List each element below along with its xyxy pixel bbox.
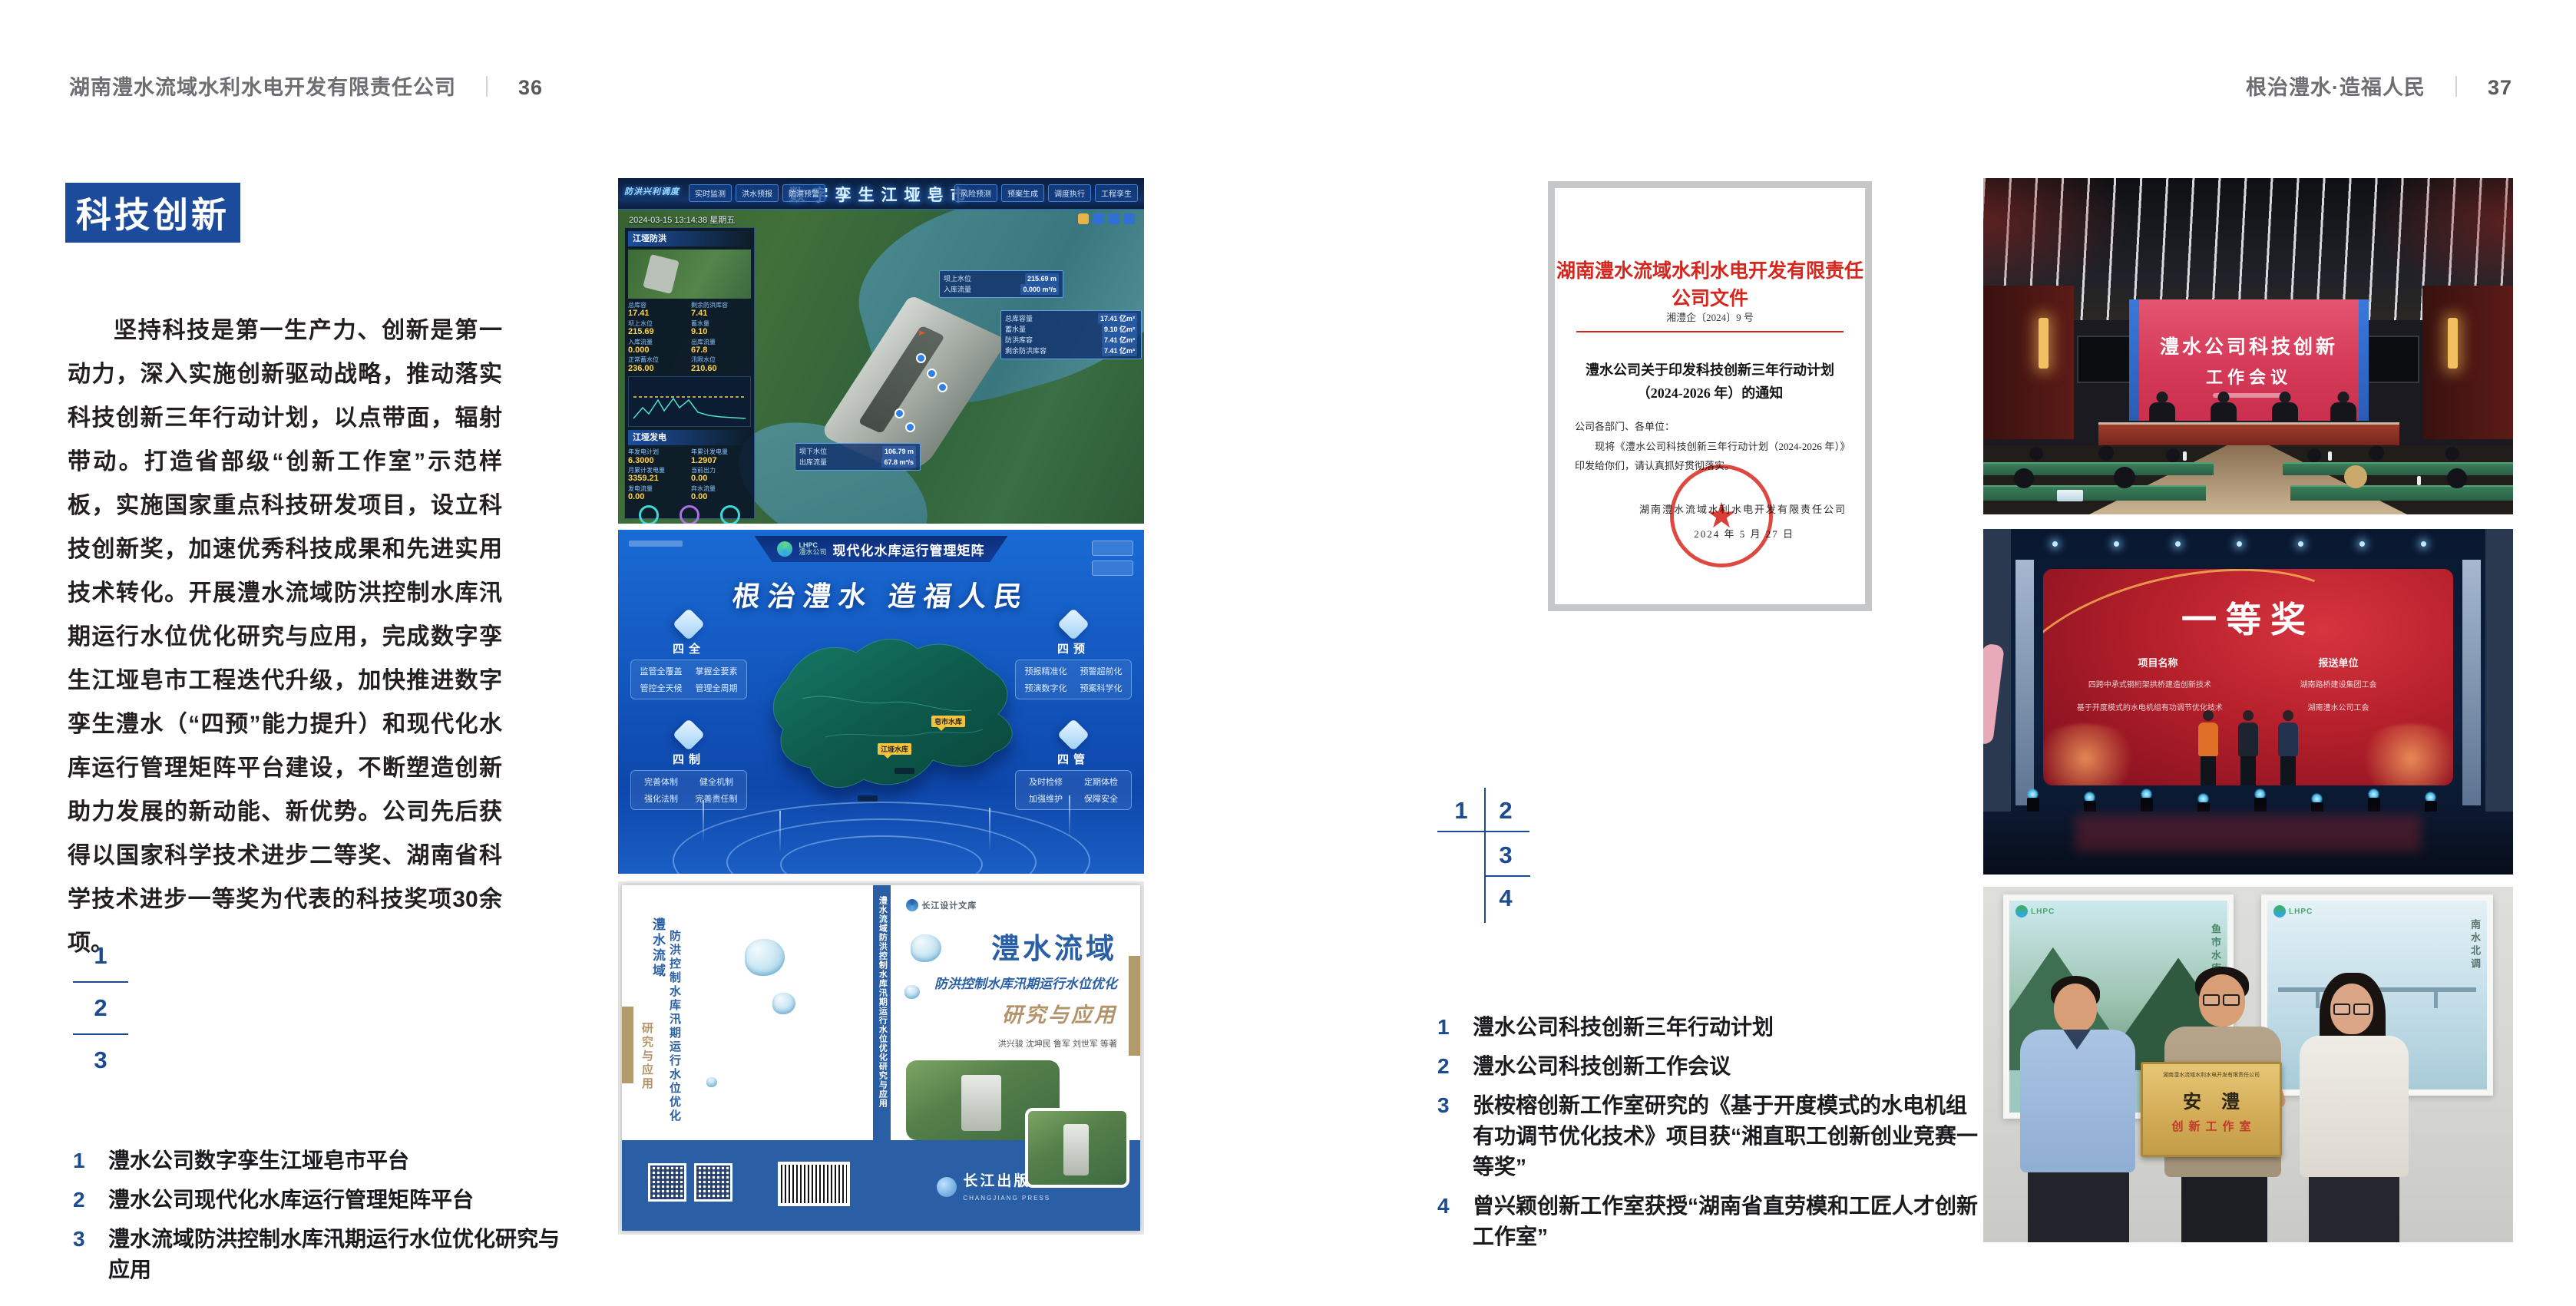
caption-text: 澧水流域防洪控制水库汛期运行水位优化研究与应用 [108, 1227, 560, 1281]
toolbar-icons [1078, 213, 1135, 224]
dam-thumbnail [628, 250, 751, 299]
official-document: 湖南澧水流域水利水电开发有限责任公司文件 湘澧企〔2024〕9 号 澧水公司关于… [1548, 181, 1872, 611]
lhpc-logo: LHPC [2273, 905, 2313, 918]
page-left-header: 湖南澧水流域水利水电开发有限责任公司 ｜ 36 [69, 71, 543, 101]
audience-head [2029, 447, 2043, 461]
desk-row [1983, 485, 2206, 501]
panel-item: 完善责任制 [689, 792, 743, 805]
stat-value: 17.41 [628, 309, 688, 319]
stage-light-dot [2298, 541, 2303, 547]
glow [2353, 724, 2453, 785]
panel-title: 四制 [630, 751, 747, 767]
powerhouse-photo [1025, 1108, 1129, 1188]
person-pants [2309, 1177, 2399, 1242]
gauge-icon [680, 505, 699, 524]
screen-edge [2359, 299, 2369, 421]
map-dot [927, 369, 937, 379]
stat-label: 坝上水位 [944, 273, 971, 284]
glasses-icon [2333, 1003, 2370, 1015]
alert-icon [1078, 213, 1089, 224]
stat-label: 蓄水量 [691, 320, 751, 327]
button-chip [1092, 541, 1133, 556]
document-org-title: 湖南澧水流域水利水电开发有限责任公司文件 [1555, 256, 1865, 311]
panel-item: 强化法制 [634, 792, 688, 805]
back-bottom-band [622, 1140, 873, 1231]
moving-head-light [2367, 789, 2380, 815]
water-drop [904, 985, 920, 999]
led-screen: 一等奖 项目名称 报送单位 四跨中承式钢桁架拱桥建造创新技术 基于开度模式的水电… [2043, 569, 2453, 785]
nav-tabs-right: 风险预测 预案生成 调度执行 工程孪生 [954, 184, 1138, 202]
stat-value: 3359.21 [628, 474, 688, 484]
back-subtitle: 防洪控制水库汛期运行水位优化 [666, 930, 683, 1123]
panel-item: 保障安全 [1074, 792, 1128, 805]
back-tail: 研究与应用 [639, 1022, 655, 1091]
speaker-silhouette [2211, 402, 2237, 422]
stat-value: 236.00 [628, 364, 688, 374]
tan-tab [622, 1007, 633, 1083]
header-divider: ｜ [2445, 76, 2467, 99]
tab: 预案生成 [1001, 184, 1044, 202]
stat-label: 入库流量 [628, 339, 688, 346]
awardee-silhouette [2277, 710, 2300, 785]
caption-number: 3 [73, 1224, 85, 1255]
divider-line [1437, 831, 1529, 832]
audience-area [1983, 445, 2513, 514]
stage-light-dot [2359, 541, 2365, 547]
org-name: 湖南路桥建设集团工会 [2257, 678, 2421, 689]
panel-item: 监管全覆盖 [634, 665, 688, 677]
back-title: 澧水流域 [648, 918, 667, 979]
document-subject: 澧水公司关于印发科技创新三年行动计划 （2024-2026 年）的通知 [1555, 359, 1865, 405]
subject-line1: 澧水公司关于印发科技创新三年行动计划 [1586, 362, 1834, 378]
stat-label: 正常蓄水位 [628, 356, 688, 363]
awardee-silhouette [2197, 710, 2220, 785]
plaque-subtitle: 创新工作室 [2143, 1118, 2280, 1134]
stage-pillar [2015, 560, 2034, 805]
panel-title: 四全 [630, 640, 747, 656]
figure-digital-twin-dashboard: 防洪兴利调度 数字孪生江垭皂市 实时监测 洪水预报 防洪预警 风险预测 预案生成… [618, 178, 1144, 524]
lhpc-logo: LHPC [2015, 905, 2055, 918]
panel-item: 定期体检 [1074, 775, 1128, 788]
map-marker: 皂市水库 [931, 716, 965, 727]
caption-number: 1 [73, 1146, 85, 1176]
matrix-header: LHPC澧水公司 现代化水库运行管理矩阵 [755, 536, 1008, 562]
wall-lamp [2039, 318, 2049, 369]
panel-item: 预警超前化 [1074, 665, 1128, 677]
section-title-box: 科技创新 [65, 183, 240, 243]
moving-head-light [2026, 789, 2039, 815]
tissue-box [2057, 490, 2083, 501]
stat-value: 7.41 亿m³ [1102, 335, 1137, 346]
gauge-icon [639, 505, 659, 524]
stat-value: 0.00 [691, 474, 751, 484]
stat-label: 蓄水量 [1005, 324, 1026, 335]
left-wall [1983, 286, 2074, 439]
stat-value: 0.00 [628, 492, 688, 502]
book-subtitle: 防洪控制水库汛期运行水位优化 [934, 973, 1117, 992]
system-name: 防洪兴利调度 [624, 185, 680, 197]
barcode [778, 1162, 850, 1206]
stage-light-dot [2114, 541, 2119, 547]
map-dot [916, 353, 926, 363]
body-paragraph: 坚持科技是第一生产力、创新是第一动力，深入实施创新驱动战略，推动落实科技创新三年… [68, 309, 502, 965]
person-head [2054, 984, 2097, 1033]
center-aisle [1983, 445, 2513, 514]
caption-row: 3 张桉榕创新工作室研究的《基于开度模式的水电机组有功调节优化技术》项目获“湘直… [1437, 1090, 1979, 1182]
lhpc-logo-icon [2015, 905, 2028, 918]
captions-left: 1 澧水公司数字孪生江垭皂市平台 2 澧水公司现代化水库运行管理矩阵平台 3 澧… [73, 1146, 564, 1294]
lhpc-logo-icon [777, 541, 792, 557]
stat-value: 67.8 [691, 346, 751, 355]
series-logo: 长江设计文库 [906, 899, 977, 911]
figure-number: 2 [94, 993, 107, 1023]
panel-title: 四预 [1015, 640, 1132, 656]
press-logo-icon [937, 1177, 957, 1197]
screen-title-line2: 工作会议 [2129, 364, 2369, 388]
tab: 调度执行 [1048, 184, 1091, 202]
light-pillar [1069, 795, 1070, 838]
small-map-label [894, 768, 914, 774]
tab: 工程孪生 [1095, 184, 1138, 202]
caption-text: 澧水公司现代化水库运行管理矩阵平台 [108, 1188, 474, 1212]
stat-value: 9.10 [691, 327, 751, 337]
person-pants [2181, 1177, 2267, 1242]
caption-number: 1 [1437, 1012, 1450, 1043]
stat-label: 总库容 [628, 302, 688, 309]
divider-line [73, 981, 128, 983]
caption-number: 4 [1437, 1191, 1450, 1222]
floor-reflection [2075, 815, 2421, 851]
panel-icon [673, 608, 705, 640]
stats-grid: 年发电计划6.3000 年累计发电量1.2907 月累计发电量3359.21 当… [628, 448, 751, 501]
gauge-icon [720, 505, 740, 524]
stat-label: 当前出力 [691, 467, 751, 474]
panel-item: 预报精准化 [1019, 665, 1073, 677]
audience-head [2014, 468, 2034, 488]
dashboard-sidebar: 江垭防洪 总库容17.41 剩余防洪库容7.41 坝上水位215.69 蓄水量9… [624, 227, 755, 519]
captions-right: 1 澧水公司科技创新三年行动计划 2 澧水公司科技创新工作会议 3 张桉榕创新工… [1437, 1012, 1979, 1261]
caption-text: 澧水公司科技创新工作会议 [1473, 1054, 1731, 1078]
water-drop [745, 939, 785, 976]
light-pillar [989, 808, 990, 851]
document-page: 湖南澧水流域水利水电开发有限责任公司文件 湘澧企〔2024〕9 号 澧水公司关于… [1555, 188, 1865, 604]
divider-line [1484, 875, 1530, 877]
stat-value: 0.00 [691, 492, 751, 502]
panel-icon [1057, 608, 1090, 640]
caption-row: 1 澧水公司科技创新三年行动计划 [1437, 1012, 1979, 1043]
figure-meeting-photo: 澧水公司科技创新 工作会议 [1983, 178, 2513, 514]
stage-light-dot [2421, 541, 2426, 547]
map-dot [894, 408, 904, 418]
figure-index-left: 1 2 3 [73, 941, 128, 1076]
book-title-tail: 研究与应用 [934, 998, 1117, 1028]
red-rule [1576, 331, 1843, 332]
tab: 洪水预报 [736, 184, 779, 202]
person-torso [2300, 1036, 2409, 1177]
panel-item: 完善体制 [634, 775, 688, 788]
figure-number: 3 [94, 1045, 107, 1076]
panel-item: 加强维护 [1019, 792, 1073, 805]
caption-row: 4 曾兴颖创新工作室获授“湖南省直劳模和工匠人才创新工作室” [1437, 1191, 1979, 1252]
stat-label: 出库流量 [799, 457, 827, 468]
panel-item: 管控全天候 [634, 682, 688, 694]
lhpc-logo-text: LHPC [2289, 908, 2313, 916]
panel-item: 及时检修 [1019, 775, 1073, 788]
column-header: 报送单位 [2273, 655, 2404, 670]
panel-icon [673, 719, 705, 751]
stat-label: 汛限水位 [691, 356, 751, 363]
figure-number: 3 [1493, 841, 1519, 869]
button-chip [1092, 560, 1133, 576]
stat-value: 215.69 m [1025, 273, 1059, 284]
book-spine: 澧水流域防洪控制水库汛期运行水位优化研究与应用 [873, 885, 891, 1231]
page-right-header: 根治澧水·造福人民 ｜ 37 [2246, 71, 2512, 101]
book-authors: 洪兴骏 沈坤民 鲁军 刘世军 等著 [934, 1037, 1117, 1050]
award-plaque: 湖南澧水流域水利水电开发有限责任公司 安澧 创新工作室 [2141, 1062, 2282, 1157]
stat-label: 出库流量 [691, 339, 751, 346]
spine-title: 澧水流域防洪控制水库汛期运行水位优化研究与应用 [876, 896, 888, 1108]
panel-siquan: 四全 监管全覆盖 掌握全要素 管控全天候 管理全周期 [630, 613, 747, 699]
plaque-org: 湖南澧水流域水利水电开发有限责任公司 [2143, 1071, 2280, 1079]
right-wall [2422, 286, 2513, 439]
figure-number: 4 [1493, 884, 1519, 912]
column-header: 项目名称 [2092, 655, 2224, 670]
stat-label: 入库流量 [944, 284, 971, 295]
caption-text: 澧水公司科技创新三年行动计划 [1473, 1015, 1774, 1039]
company-name: 湖南澧水流域水利水电开发有限责任公司 [69, 76, 456, 99]
divider-line [73, 1033, 128, 1035]
light-pillar [703, 800, 704, 843]
book-title: 澧水流域 [934, 925, 1117, 967]
map-marker: 江垭水库 [878, 743, 911, 755]
water-bottle [2183, 451, 2187, 461]
publisher-name-en: CHANGJIANG PRESS [963, 1195, 1050, 1202]
panel-item: 管理全周期 [689, 682, 743, 694]
panel-title: 四管 [1015, 751, 1132, 767]
rostrum-table [2098, 422, 2399, 448]
stat-label: 总库容量 [1005, 313, 1033, 324]
water-bottle [2328, 451, 2332, 461]
moving-head-light [2140, 789, 2153, 815]
lhpc-logo-icon [2273, 905, 2286, 918]
figure-book-cover: 澧水流域 防洪控制水库汛期运行水位优化 研究与应用 澧水流域防洪控制水库汛期运行… [618, 881, 1144, 1235]
water-drop [772, 993, 795, 1014]
stat-label: 剩余防洪库容 [691, 302, 751, 309]
wall-lamp [2448, 318, 2458, 369]
datetime-placeholder [629, 541, 683, 547]
matrix-title: 现代化水库运行管理矩阵 [833, 540, 985, 559]
stat-value: 7.41 [691, 309, 751, 319]
mini-chart [628, 376, 751, 427]
audience-head [2369, 445, 2384, 461]
subject-line2: （2024-2026 年）的通知 [1637, 385, 1784, 401]
lhpc-logo-text: LHPC [2031, 908, 2055, 916]
page-number-right: 37 [2488, 76, 2512, 99]
stat-value: 9.10 亿m³ [1102, 324, 1137, 335]
speaker-silhouette [2149, 402, 2175, 422]
caption-number: 2 [73, 1185, 85, 1215]
stage-light-dot [2175, 541, 2181, 547]
book-back-cover: 澧水流域 防洪控制水库汛期运行水位优化 研究与应用 [622, 885, 873, 1231]
audience-head [2307, 448, 2321, 462]
book-front-cover: 长江设计文库 澧水流域 防洪控制水库汛期运行水位优化 研究与应用 洪兴骏 沈坤民… [891, 885, 1140, 1231]
caption-number: 2 [1437, 1051, 1450, 1082]
audience-head [2445, 447, 2459, 461]
panel-siyu: 四预 预报精准化 预警超前化 预演数字化 预案科学化 [1015, 613, 1132, 699]
stat-label: 月累计发电量 [628, 467, 688, 474]
map-dot [905, 422, 915, 432]
stat-label: 年发电计划 [628, 448, 688, 455]
audience-head [2447, 468, 2467, 488]
stat-label: 坝上水位 [628, 320, 688, 327]
speaker-silhouette [2330, 402, 2356, 422]
press-logo-icon [906, 899, 918, 911]
stat-label: 弃水流量 [691, 485, 751, 492]
stat-value: 0.000 [628, 346, 688, 355]
award-title: 一等奖 [2043, 592, 2453, 643]
data-callout: 坝上水位215.69 m 入库流量0.000 m³/s [939, 270, 1063, 298]
stat-value: 17.41 亿m³ [1098, 313, 1137, 324]
stat-label: 防洪库容 [1005, 335, 1033, 346]
stat-value: 210.60 [691, 364, 751, 374]
magazine-spread: 湖南澧水流域水利水电开发有限责任公司 ｜ 36 根治澧水·造福人民 ｜ 37 科… [0, 0, 2576, 1306]
section-title: 科技创新 [76, 187, 230, 238]
caption-text: 曾兴颖创新工作室获授“湖南省直劳模和工匠人才创新工作室” [1473, 1194, 1978, 1248]
stat-value: 106.79 m [882, 446, 916, 457]
basin-map [733, 607, 1056, 814]
stat-label: 剩余防洪库容 [1005, 346, 1047, 356]
stat-label: 发电流量 [628, 485, 688, 492]
caption-row: 1 澧水公司数字孪生江垭皂市平台 [73, 1146, 564, 1176]
slogan: 根治澧水·造福人民 [2246, 76, 2426, 99]
header-divider: ｜ [477, 76, 498, 99]
panel-item: 健全机制 [689, 775, 743, 788]
official-seal: ★ [1670, 465, 1773, 567]
locate-icon [1109, 213, 1119, 224]
audience-head [2344, 465, 2367, 488]
datetime: 2024-03-15 13:14:38 星期五 [629, 213, 735, 226]
plaque-title: 安澧 [2143, 1086, 2280, 1113]
project-name: 四跨中承式钢桁架拱桥建造创新技术 [2068, 678, 2232, 689]
caption-text: 张桉榕创新工作室研究的《基于开度模式的水电机组有功调节优化技术》项目获“湘直职工… [1473, 1093, 1978, 1179]
small-map-label [858, 795, 878, 802]
qr-code [648, 1163, 686, 1202]
stat-label: 坝下水位 [799, 446, 827, 457]
map-dot [937, 382, 947, 392]
panel-title: 江垭防洪 [628, 231, 751, 246]
logo-text: LHPC澧水公司 [799, 542, 826, 557]
panel-title: 江垭发电 [628, 430, 751, 445]
panel-item: 预演数字化 [1019, 682, 1073, 694]
gauges [628, 505, 751, 524]
data-callout: 总库容量17.41 亿m³ 蓄水量9.10 亿m³ 防洪库容7.41 亿m³ 剩… [1000, 310, 1142, 359]
stage-pillar [2462, 560, 2481, 805]
figure-number: 1 [94, 941, 107, 971]
tab: 风险预测 [954, 184, 997, 202]
data-callout: 坝下水位106.79 m 出库流量67.8 m³/s [795, 443, 921, 471]
audience-head [2166, 448, 2180, 462]
poster-calligraphy: 南水北调 [2468, 919, 2482, 971]
caption-row: 2 澧水公司科技创新工作会议 [1437, 1051, 1979, 1082]
stat-label: 年累计发电量 [691, 448, 751, 455]
stat-value: 67.8 m³/s [881, 457, 916, 468]
light-pillar [779, 811, 781, 854]
moving-head-light [2254, 789, 2267, 815]
caption-row: 2 澧水公司现代化水库运行管理矩阵平台 [73, 1185, 564, 1215]
stage-light-dot [2237, 541, 2242, 547]
water-bottle [2417, 476, 2421, 485]
caption-text: 澧水公司数字孪生江垭皂市平台 [108, 1149, 409, 1172]
stat-value: 6.3000 [628, 456, 688, 466]
audience-head [2114, 467, 2135, 488]
qr-code [694, 1163, 732, 1202]
desk-row [2290, 485, 2513, 501]
speaker-silhouette [2272, 402, 2298, 422]
seal-star-icon: ★ [1705, 498, 1737, 534]
figure-number: 2 [1493, 797, 1519, 825]
presenter-silhouette [2237, 710, 2260, 785]
glasses-icon [2203, 994, 2240, 1006]
caption-row: 3 澧水流域防洪控制水库汛期运行水位优化研究与应用 [73, 1224, 564, 1285]
figure-award-photo: 一等奖 项目名称 报送单位 四跨中承式钢桁架拱桥建造创新技术 基于开度模式的水电… [1983, 529, 2513, 875]
person-pants [2028, 1172, 2129, 1242]
figure-matrix-platform: LHPC澧水公司 现代化水库运行管理矩阵 根治澧水 造福人民 皂市水库 江垭水库… [618, 530, 1144, 874]
series-name: 长江设计文库 [921, 899, 977, 911]
book-spread: 澧水流域 防洪控制水库汛期运行水位优化 研究与应用 澧水流域防洪控制水库汛期运行… [622, 885, 1140, 1231]
stats-grid: 总库容17.41 剩余防洪库容7.41 坝上水位215.69 蓄水量9.10 入… [628, 302, 751, 373]
stat-value: 0.000 m³/s [1020, 284, 1059, 295]
stat-value: 1.2907 [691, 456, 751, 466]
tab: 防洪预警 [782, 184, 825, 202]
tan-bar [1129, 956, 1140, 1056]
panel-item: 掌握全要素 [689, 665, 743, 677]
person-torso [2020, 1030, 2135, 1172]
divider-line [1484, 788, 1486, 923]
figure-number: 1 [1448, 797, 1474, 825]
layers-icon [1093, 213, 1104, 224]
page-number-left: 36 [518, 76, 543, 99]
panel-icon [1057, 719, 1090, 751]
user-icon [1124, 213, 1135, 224]
nav-tabs-left: 实时监测 洪水预报 防洪预警 [689, 184, 825, 202]
water-drop [706, 1077, 717, 1087]
desk-row [2283, 462, 2513, 475]
audience-head [2098, 445, 2114, 461]
document-salutation: 公司各部门、各单位： [1575, 418, 1675, 433]
panel-item: 预案科学化 [1074, 682, 1128, 694]
screen-title-line1: 澧水公司科技创新 [2129, 332, 2369, 359]
document-number: 湘澧企〔2024〕9 号 [1555, 309, 1865, 324]
stat-value: 215.69 [628, 327, 688, 337]
figure-group-photo: LHPC 鱼市水库 LHPC 南水北调 [1983, 887, 2513, 1242]
stage-light-dot [2052, 541, 2058, 547]
panel-siguan: 四管 及时检修 定期体检 加强维护 保障安全 [1015, 723, 1132, 810]
caption-number: 3 [1437, 1090, 1450, 1121]
tab: 实时监测 [689, 184, 732, 202]
screen-edge [2129, 299, 2139, 421]
panel-sizhi: 四制 完善体制 健全机制 强化法制 完善责任制 [630, 723, 747, 810]
stat-value: 7.41 亿m³ [1102, 346, 1137, 356]
